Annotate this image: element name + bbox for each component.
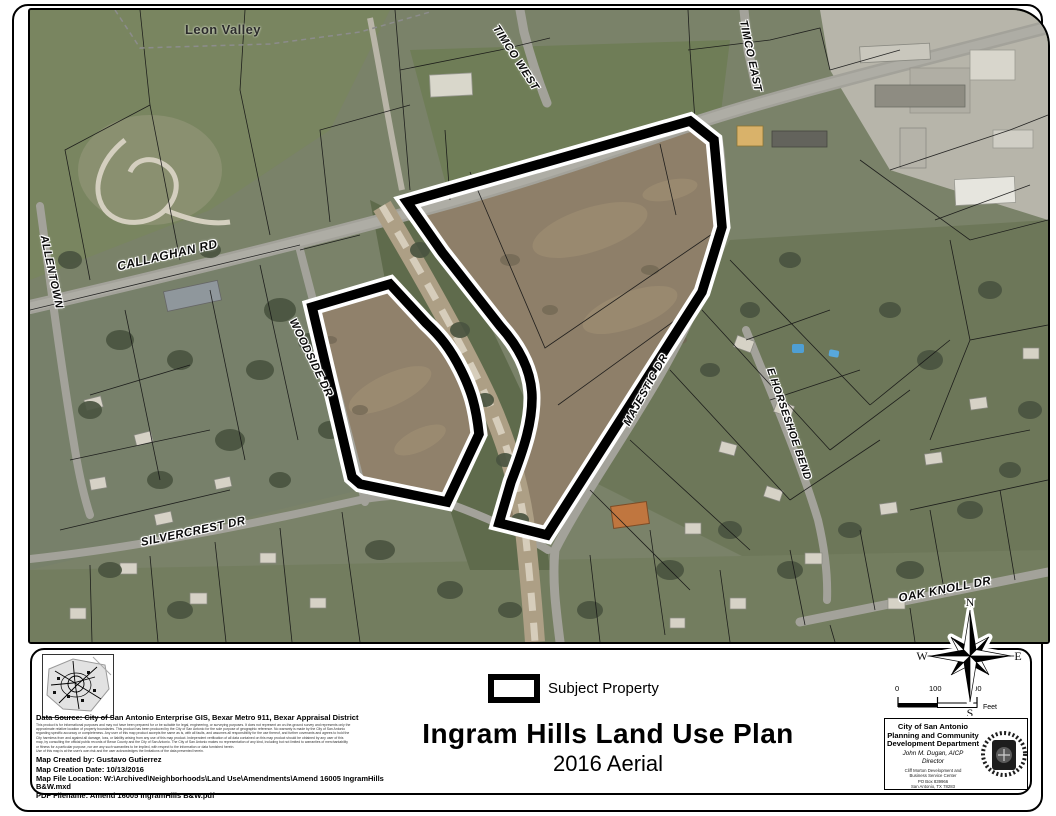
legend-label: Subject Property [548,680,659,697]
pdf-filename-line: PDF Filename: Amend 16005 IngramHills B&… [36,792,396,800]
aerial-imagery [30,10,1048,642]
creation-date-line: Map Creation Date: 10/13/2016 [36,766,396,774]
compass-s-label: S [967,706,974,716]
disclaimer-line: Use of this map is at the user's own ris… [36,750,396,753]
compass-n-label: N [966,598,975,609]
locator-inset-map [42,654,114,718]
compass-w-label: W [916,649,928,663]
map-sheet: Leon Valley TIMCO WEST TIMCO EAST CALLAG… [0,0,1056,816]
compass-rose-icon: N S W E [916,598,1024,716]
scale-tick-0: 0 [895,684,899,693]
director-name: John M. Dugan, AICP [885,750,981,757]
map-title: Ingram Hills Land Use Plan [388,718,828,750]
department-box: City of San Antonio Planning and Communi… [884,718,1028,790]
bexar-county-locator [43,655,113,717]
file-location-line: Map File Location: W:\Archived\Neighborh… [36,775,396,790]
director-title: Director [885,758,981,765]
data-source-line: Data Source: City of San Antonio Enterpr… [36,714,396,722]
department-text: City of San Antonio Planning and Communi… [885,719,981,789]
city-seal-icon [981,721,1027,787]
compass-e-label: E [1014,649,1021,663]
dept-address-line: San Antonio, TX 78283 [885,785,981,790]
dept-line: Development Department [885,740,981,749]
subject-property-swatch [488,674,540,703]
map-subtitle: 2016 Aerial [388,751,828,777]
aerial-map: Leon Valley TIMCO WEST TIMCO EAST CALLAG… [28,8,1050,644]
created-by-line: Map Created by: Gustavo Gutierrez [36,756,396,764]
legend: Subject Property [488,672,659,704]
credits-block: Data Source: City of San Antonio Enterpr… [36,714,396,802]
place-label-leon-valley: Leon Valley [185,22,261,37]
